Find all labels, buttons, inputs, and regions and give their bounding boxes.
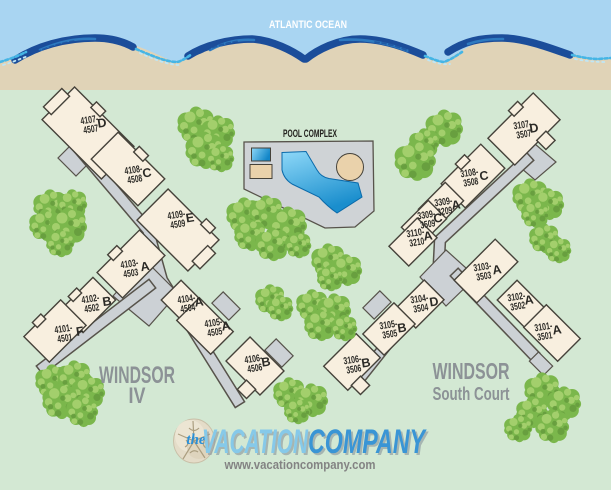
svg-text:South Court: South Court <box>433 384 510 404</box>
svg-text:WINDSOR: WINDSOR <box>433 358 510 384</box>
svg-text:IV: IV <box>129 383 146 408</box>
svg-text:VACATION: VACATION <box>202 423 309 461</box>
svg-text:POOL COMPLEX: POOL COMPLEX <box>283 128 337 140</box>
svg-text:www.vacationcompany.com: www.vacationcompany.com <box>224 457 376 472</box>
svg-text:COMPANY: COMPANY <box>308 423 427 461</box>
svg-text:ATLANTIC OCEAN: ATLANTIC OCEAN <box>269 19 347 31</box>
